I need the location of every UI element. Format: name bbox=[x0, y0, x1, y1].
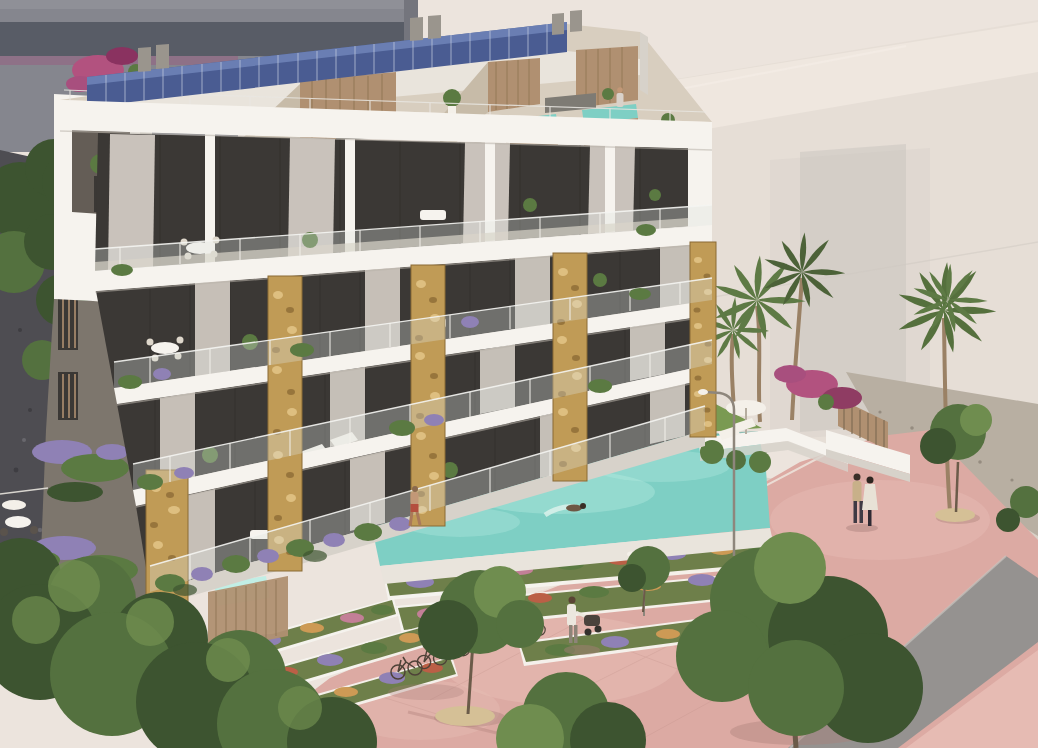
rooftop-person bbox=[617, 87, 624, 107]
architectural-rendering bbox=[0, 0, 1038, 748]
tree-pit bbox=[435, 706, 495, 726]
shrub bbox=[996, 508, 1020, 532]
rendering-canvas bbox=[0, 0, 1038, 748]
